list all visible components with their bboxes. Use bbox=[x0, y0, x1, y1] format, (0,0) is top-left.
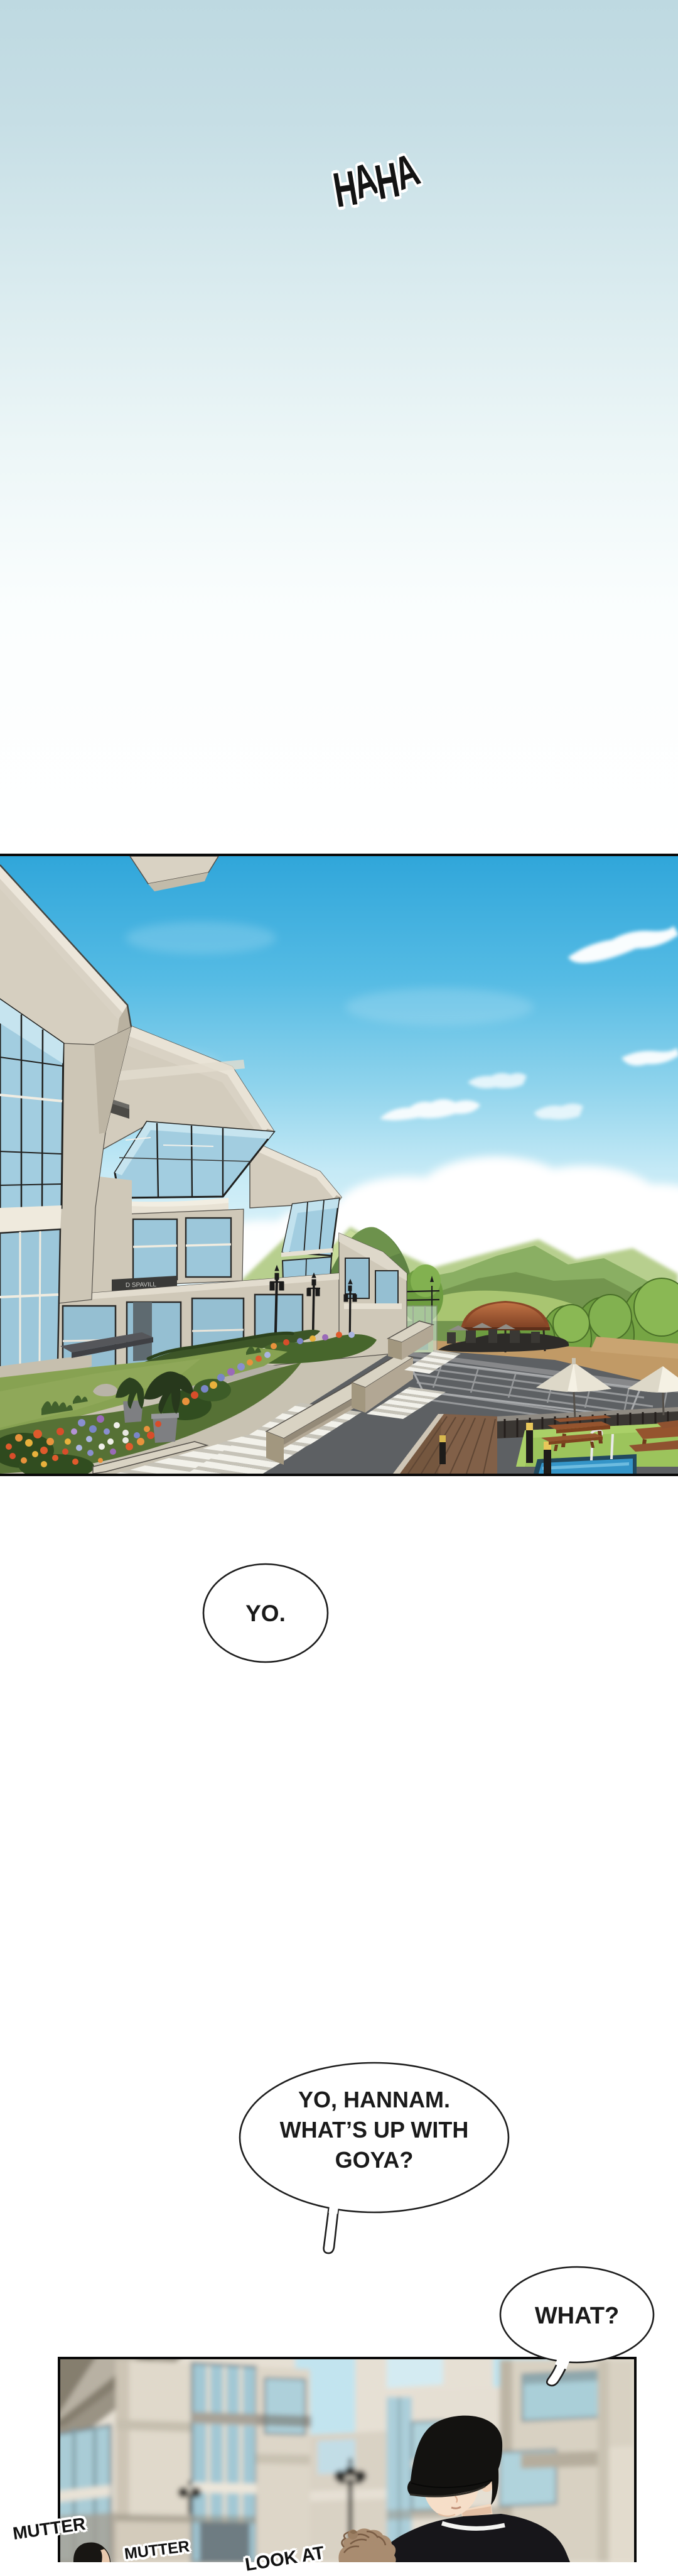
svg-text:YO.: YO. bbox=[245, 1600, 286, 1626]
svg-text:WHAT?: WHAT? bbox=[535, 2303, 619, 2329]
svg-text:WHAT’S UP WITH: WHAT’S UP WITH bbox=[280, 2117, 469, 2143]
svg-text:YO, HANNAM.: YO, HANNAM. bbox=[298, 2087, 450, 2112]
svg-text:GOYA?: GOYA? bbox=[335, 2147, 414, 2173]
